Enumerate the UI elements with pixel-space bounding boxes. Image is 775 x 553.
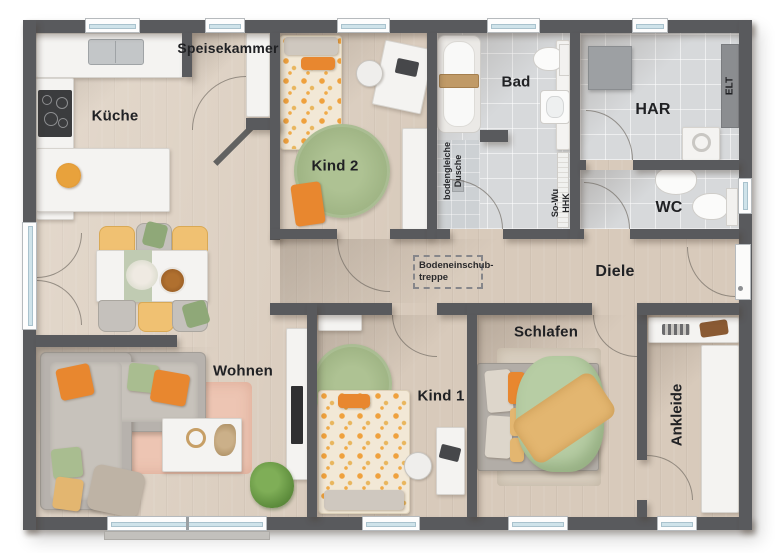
speisekammer-label: Speisekammer <box>177 40 278 56</box>
bad-sink-basin <box>546 96 564 118</box>
potted-plant <box>250 462 294 508</box>
floor-plan: Bodeneinschub- treppe <box>0 0 775 553</box>
kind1-orange-pillow <box>338 394 370 408</box>
attic-hatch-line1: Bodeneinschub- <box>419 260 493 271</box>
wall-wohnen-top <box>36 335 177 347</box>
heater-annotation: So-Wu HHK <box>550 189 572 217</box>
kueche-label: Küche <box>92 108 139 125</box>
window-ankleide <box>657 516 697 531</box>
coffee-table-tray <box>186 428 206 448</box>
kind2-chair <box>356 60 383 87</box>
wall-shower-stub <box>480 130 508 142</box>
fruit-bowl <box>56 163 81 188</box>
window-kind2 <box>337 18 390 33</box>
wc-toilet <box>692 193 728 220</box>
wall-wc-bottom-b <box>630 229 739 239</box>
wohnen-label: Wohnen <box>213 363 273 380</box>
wall-kind2-left <box>270 33 280 240</box>
wc-sink <box>655 167 697 195</box>
kind1-desk <box>436 427 465 495</box>
wc-label: WC <box>655 199 682 217</box>
window-wc <box>738 178 752 214</box>
tv <box>291 386 303 444</box>
terrace-step <box>104 531 270 540</box>
washing-machine-door <box>692 133 711 152</box>
sofa-pillow-yellow <box>52 476 84 512</box>
kind2-floor-cushion <box>290 181 326 227</box>
shower-annotation-line2: Dusche <box>453 142 464 200</box>
bad-toilet-tank <box>559 44 570 76</box>
kind1-chair <box>404 452 432 480</box>
burner-4 <box>58 118 68 128</box>
heater-annotation-line1: So-Wu <box>550 189 561 217</box>
kind2-wardrobe <box>402 128 430 230</box>
wc-toilet-tank <box>726 188 738 226</box>
entrance-door-leaf <box>735 244 751 300</box>
attic-hatch-line2: treppe <box>419 272 448 283</box>
attic-hatch-box: Bodeneinschub- treppe <box>413 255 483 289</box>
wall-schlafen-ankleide-a <box>637 303 647 460</box>
kitchen-sink-divider <box>115 41 116 63</box>
window-har <box>632 18 668 33</box>
wall-kind1-left <box>307 303 317 517</box>
har-unit <box>588 46 632 90</box>
wall-har-bottom-a <box>580 160 586 170</box>
diele-label: Diele <box>595 263 634 281</box>
elt-label: ELT <box>725 77 736 95</box>
wall-schlafen-top <box>467 303 592 315</box>
wall-ankleide-top <box>637 303 739 315</box>
shower-annotation-line1: bodengleiche <box>442 142 453 200</box>
wall-schlafen-ankleide-b <box>637 500 647 517</box>
window-kueche <box>85 18 140 33</box>
dining-chair-4 <box>98 300 136 332</box>
burner-2 <box>56 97 68 109</box>
schlafen-label: Schlafen <box>514 324 578 341</box>
terrace-door <box>22 222 37 330</box>
window-bad <box>487 18 540 33</box>
table-bowl <box>159 267 186 294</box>
wall-bad-bottom-b <box>503 229 570 239</box>
kind1-label: Kind 1 <box>417 388 464 405</box>
wall-har-bottom-b <box>633 160 739 170</box>
burner-3 <box>44 112 58 126</box>
kind1-pillow <box>324 490 404 510</box>
table-flowers <box>126 260 158 290</box>
ankleide-label: Ankleide <box>669 384 686 447</box>
wall-kind1-schlafen <box>467 315 477 517</box>
window-schlafen <box>508 516 568 531</box>
window-wohnen-mullion <box>186 517 189 530</box>
ankleide-wardrobe <box>701 345 739 513</box>
bath-caddy <box>439 74 479 88</box>
wall-kind1-top-a <box>270 303 392 315</box>
bad-label: Bad <box>502 74 531 91</box>
dried-plant <box>214 424 236 456</box>
wall-kind2-bad <box>427 33 437 239</box>
wall-wc-bottom-a <box>580 229 584 239</box>
wall-kind2-bottom-b <box>390 229 430 239</box>
wall-bad-bottom-a <box>437 229 450 239</box>
burner-1 <box>42 95 52 105</box>
shower-annotation: bodengleiche Dusche <box>442 142 464 200</box>
kind2-pillow <box>284 37 338 55</box>
ankleide-small-items <box>662 324 690 335</box>
dining-chair-5 <box>138 302 174 332</box>
heater-annotation-line2: HHK <box>561 189 572 217</box>
sofa-pillow-green-2 <box>51 447 84 480</box>
window-speisekammer <box>205 18 245 33</box>
kind2-orange-pillow <box>301 57 335 70</box>
wall-kind1-top-b <box>437 303 467 315</box>
entrance-door-handle <box>738 286 743 291</box>
kitchen-sink <box>88 39 144 65</box>
har-label: HAR <box>635 101 670 119</box>
sofa-pillow-orange-2 <box>149 369 190 407</box>
wall-kind2-bottom-a <box>270 229 337 239</box>
kind2-label: Kind 2 <box>311 158 358 175</box>
window-kind1 <box>362 516 420 531</box>
